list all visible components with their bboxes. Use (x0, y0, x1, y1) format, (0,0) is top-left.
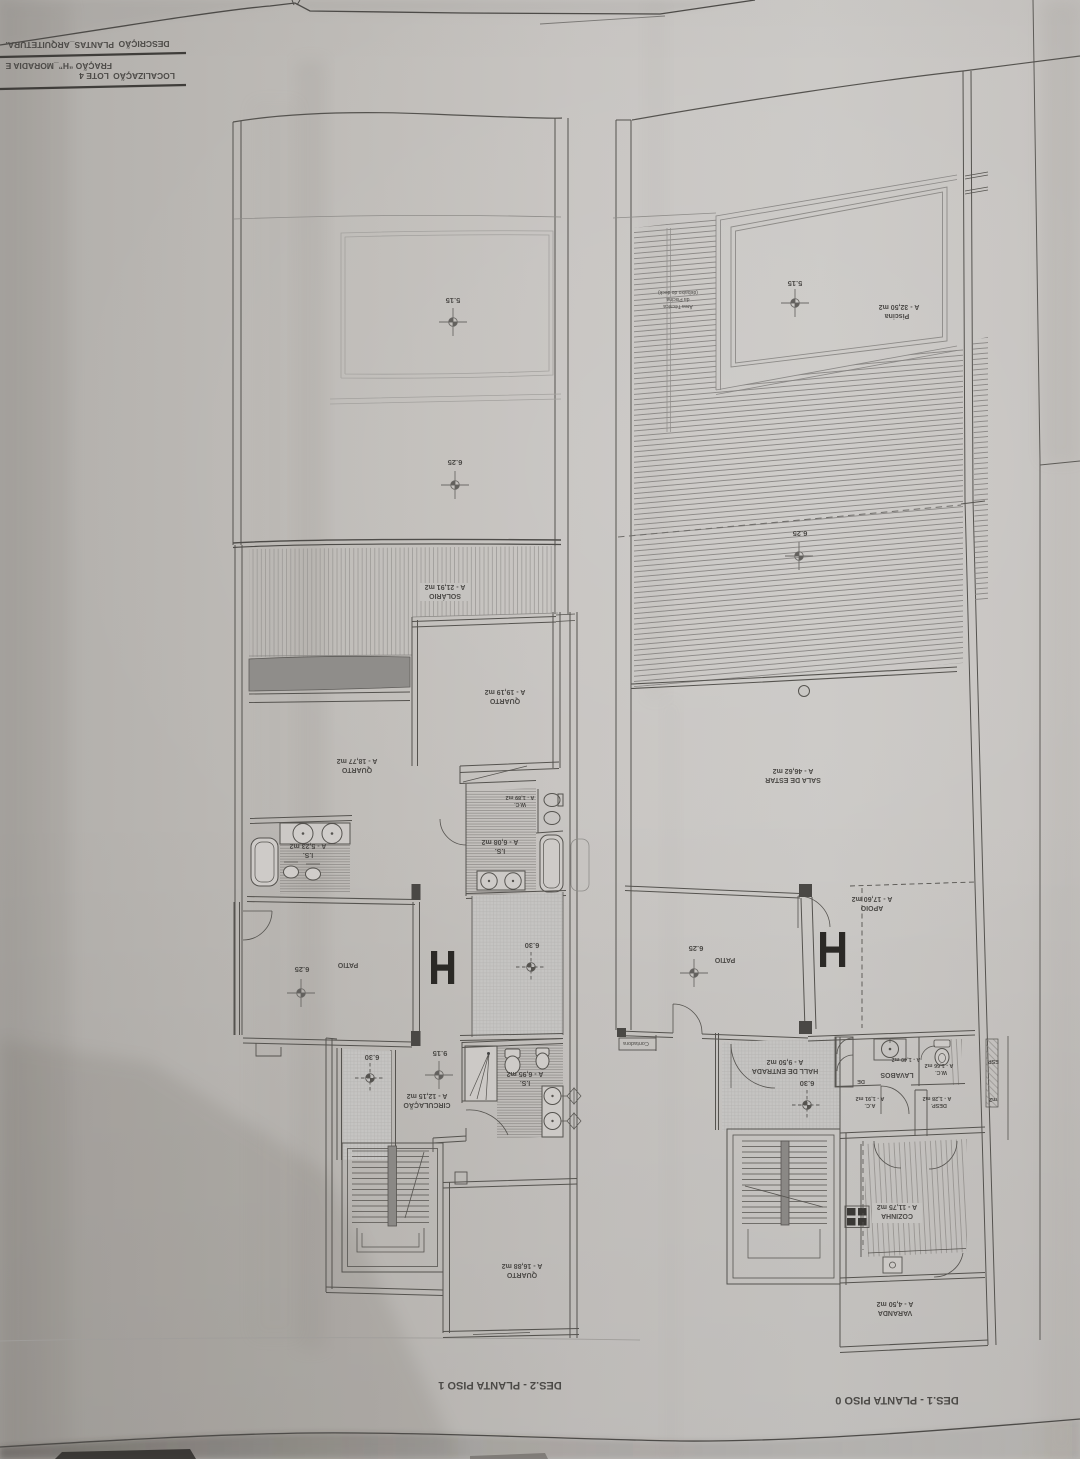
svg-text:m2: m2 (989, 1096, 997, 1102)
svg-text:QUARTO: QUARTO (341, 766, 372, 773)
svg-text:A - 1,91 m2: A - 1,91 m2 (856, 1095, 885, 1101)
svg-text:5.15: 5.15 (446, 296, 461, 305)
svg-text:6.25: 6.25 (448, 458, 463, 467)
svg-text:DESCRIÇÃO: DESCRIÇÃO (118, 39, 169, 49)
svg-text:A - 18,77 m2: A - 18,77 m2 (337, 757, 378, 764)
svg-text:SALA DE ESTAR: SALA DE ESTAR (765, 776, 821, 783)
svg-text:A - 32,50 m2: A - 32,50 m2 (879, 303, 920, 310)
svg-text:Contadora: Contadora (622, 1040, 649, 1046)
svg-text:A - 9,50 m2: A - 9,50 m2 (767, 1058, 804, 1065)
svg-text:5.15: 5.15 (788, 279, 803, 288)
svg-text:A - 19,19 m2: A - 19,19 m2 (485, 688, 526, 695)
svg-text:A - 46,62 m2: A - 46,62 m2 (773, 767, 814, 774)
svg-text:6.25: 6.25 (295, 965, 310, 974)
svg-text:6.25: 6.25 (793, 529, 808, 538)
svg-text:6.30: 6.30 (800, 1079, 815, 1088)
svg-text:APOIO: APOIO (860, 904, 883, 911)
svg-text:LOTE 4: LOTE 4 (79, 71, 109, 81)
svg-text:A - 6,95 m2: A - 6,95 m2 (507, 1070, 544, 1077)
svg-text:(debaixo do deck): (debaixo do deck) (658, 289, 698, 295)
svg-text:A - 11,75 m2: A - 11,75 m2 (877, 1203, 917, 1210)
svg-text:A - 1,66 m2: A - 1,66 m2 (925, 1062, 954, 1068)
svg-text:9.15: 9.15 (433, 1049, 448, 1058)
svg-text:A - 17,60 m2: A - 17,60 m2 (852, 895, 893, 902)
svg-text:A - 6,08 m2: A - 6,08 m2 (482, 838, 519, 845)
svg-text:DES.2 - PLANTA PISO 1: DES.2 - PLANTA PISO 1 (438, 1379, 561, 1391)
svg-text:CIRCULAÇÃO: CIRCULAÇÃO (403, 1101, 451, 1110)
svg-text:PLANTAS_ARQUITETURA.: PLANTAS_ARQUITETURA. (6, 40, 114, 50)
svg-text:A - 21,91 m2: A - 21,91 m2 (425, 583, 466, 590)
svg-text:DESP.: DESP. (931, 1102, 947, 1108)
svg-text:LOCALIZAÇÃO: LOCALIZAÇÃO (113, 71, 175, 81)
svg-text:W.C.: W.C. (935, 1069, 947, 1075)
svg-text:DES.1 - PLANTA PISO 0: DES.1 - PLANTA PISO 0 (835, 1394, 958, 1406)
svg-text:A - 16,88 m2: A - 16,88 m2 (502, 1262, 543, 1269)
svg-text:SOLÁRIO: SOLÁRIO (429, 592, 461, 601)
svg-text:A - 4,50 m2: A - 4,50 m2 (877, 1300, 914, 1307)
svg-text:6.25: 6.25 (689, 944, 704, 953)
svg-text:A - 5,23 m2: A - 5,23 m2 (290, 842, 327, 849)
svg-text:A - 1,28 m2: A - 1,28 m2 (923, 1095, 952, 1101)
svg-text:Área Técnica: Área Técnica (663, 303, 693, 310)
svg-text:A.C.: A.C. (864, 1102, 875, 1108)
svg-text:DE: DE (857, 1078, 865, 1084)
svg-text:VARANDA: VARANDA (878, 1309, 912, 1316)
svg-text:W.C.: W.C. (514, 801, 526, 807)
svg-text:A - 1,89 m2: A - 1,89 m2 (506, 794, 535, 800)
svg-text:6.30: 6.30 (525, 941, 540, 950)
svg-text:PATIO: PATIO (714, 956, 735, 963)
svg-text:LAVABOS: LAVABOS (880, 1071, 914, 1078)
svg-text:ESP.: ESP. (987, 1058, 999, 1064)
svg-text:I.S.: I.S. (303, 851, 314, 858)
svg-text:da Piscina: da Piscina (666, 296, 689, 302)
svg-text:HALL DE ENTRADA: HALL DE ENTRADA (752, 1067, 818, 1074)
svg-text:I.S.: I.S. (495, 847, 506, 854)
svg-text:QUARTO: QUARTO (506, 1271, 537, 1278)
svg-text:A - 1,40 m2: A - 1,40 m2 (892, 1056, 921, 1062)
svg-text:PATIO: PATIO (337, 961, 358, 968)
svg-text:A - 12,15 m2: A - 12,15 m2 (407, 1092, 448, 1099)
svg-text:I.S.: I.S. (520, 1079, 531, 1086)
svg-text:Piscina: Piscina (885, 312, 910, 319)
svg-text:COZINHA: COZINHA (881, 1212, 913, 1219)
svg-text:QUARTO: QUARTO (489, 697, 520, 704)
svg-text:6.30: 6.30 (365, 1053, 380, 1062)
svg-text:FRAÇÃO “H”_MORADIA E: FRAÇÃO “H”_MORADIA E (5, 61, 112, 71)
